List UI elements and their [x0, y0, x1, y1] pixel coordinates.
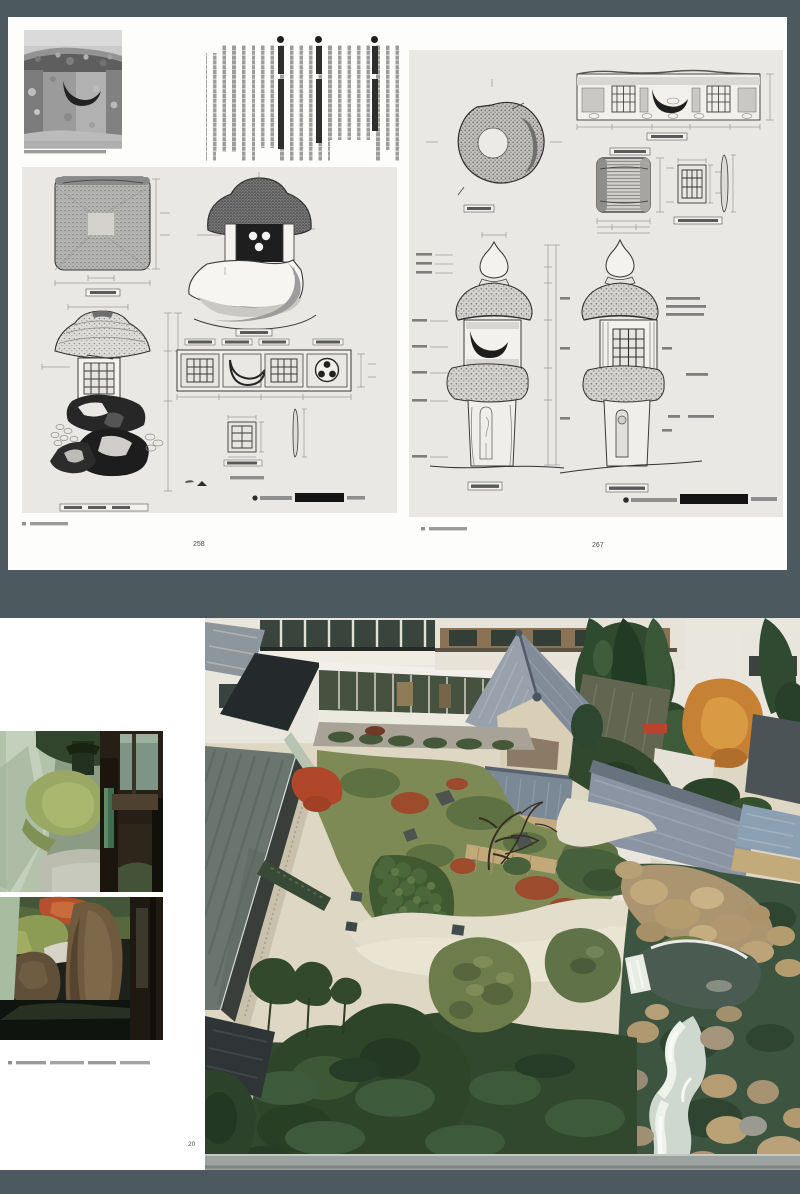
svg-text:258: 258 — [193, 541, 205, 548]
svg-text:20: 20 — [188, 1141, 196, 1148]
svg-text:267: 267 — [592, 542, 604, 549]
